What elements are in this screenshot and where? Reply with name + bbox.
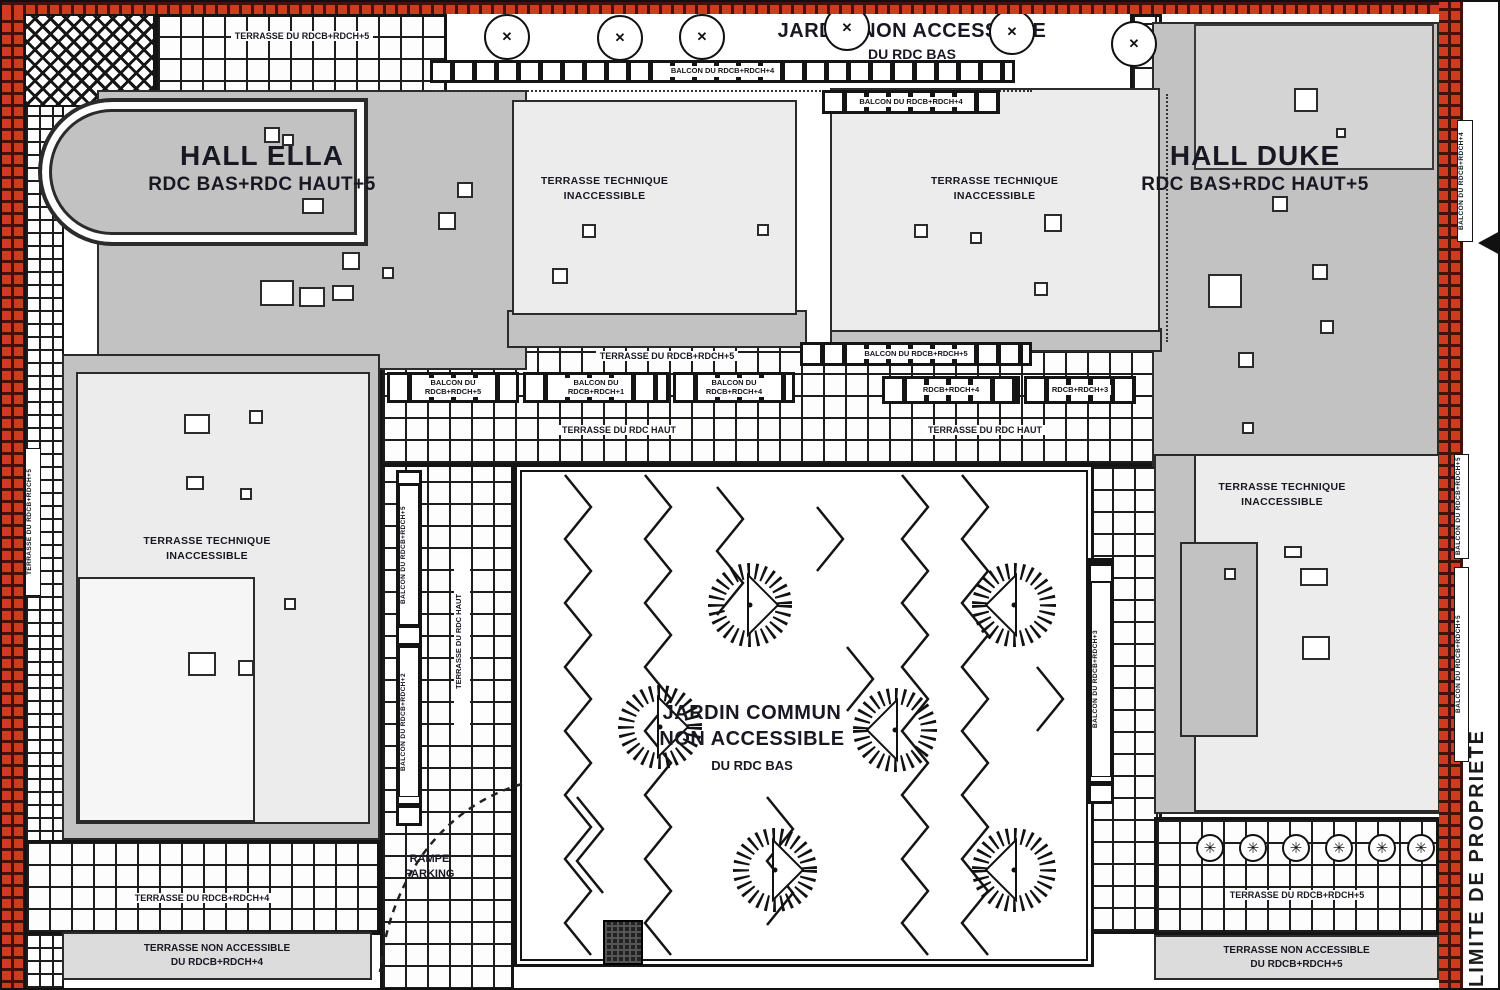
balcony-strip-right-2-label: RDCB+RDCH+3 xyxy=(1049,385,1111,396)
roof-element xyxy=(457,182,473,198)
tree-icon: ✕ xyxy=(679,14,725,60)
garden-label-line2: NON ACCESSIBLE xyxy=(622,728,882,751)
roof-element xyxy=(1272,196,1288,212)
roof-element xyxy=(1224,568,1236,580)
planter-tree-icon: ✳ xyxy=(1282,834,1310,862)
hall-ella-name: HALL ELLA xyxy=(107,140,417,172)
terrace-technique-right-line1: TERRASSE TECHNIQUE xyxy=(1177,480,1387,495)
roof-element xyxy=(552,268,568,284)
terrace-top-left-label: TERRASSE DU RDCB+RDCH+5 xyxy=(231,31,374,41)
terrace-technique-1-line2: INACCESSIBLE xyxy=(502,189,707,204)
roof-element xyxy=(438,212,456,230)
terrace-bottom-left-label-row: TERRASSE DU RDCB+RDCH+4 xyxy=(92,890,312,905)
terrace-mid-label: TERRASSE DU RDCB+RDCH+5 xyxy=(596,351,739,361)
terrace-top-left-label-row: TERRASSE DU RDCB+RDCH+5 xyxy=(162,28,442,44)
terrace-bottom-right-label-row: TERRASSE DU RDCB+RDCH+5 xyxy=(1182,887,1412,902)
roof-element xyxy=(1312,264,1328,280)
balcony-margin-label-1: BALCON DU RDCB+RDCH+4 xyxy=(1457,120,1473,242)
balcony-strip-mid-0-label: BALCON DU RDCB+RDCH+5 xyxy=(861,349,970,360)
terrace-technique-label-left: TERRASSE TECHNIQUE INACCESSIBLE xyxy=(102,534,312,564)
roof-element xyxy=(1284,546,1302,558)
terrace-na-right-line1: TERRASSE NON ACCESSIBLE xyxy=(1156,944,1437,958)
property-boundary-top xyxy=(2,2,1462,14)
balcony-strip-right-2: RDCB+RDCH+3 xyxy=(1024,376,1136,404)
tree-icon: ✕ xyxy=(597,15,643,61)
roof-element xyxy=(302,198,324,214)
hall-duke-levels: RDC BAS+RDC HAUT+5 xyxy=(1082,174,1428,196)
roof-element xyxy=(1294,88,1318,112)
panel1-lower-ledge xyxy=(507,310,807,348)
terrace-technique-panel-2 xyxy=(830,88,1160,332)
terrace-rdc-haut-left-label: TERRASSE DU RDC HAUT xyxy=(558,425,680,435)
roof-element xyxy=(970,232,982,244)
terrace-na-left-line2: DU RDCB+RDCH+4 xyxy=(64,956,370,970)
terrace-technique-2-line1: TERRASSE TECHNIQUE xyxy=(892,174,1097,189)
terrace-technique-1-line1: TERRASSE TECHNIQUE xyxy=(502,174,707,189)
roof-element xyxy=(284,598,296,610)
roof-element xyxy=(757,224,769,236)
planter-tree-icon: ✳ xyxy=(1407,834,1435,862)
roof-element xyxy=(1242,422,1254,434)
balcony-strip-mid-1: BALCON DURDCB+RDCH+5 xyxy=(387,372,519,403)
terrace-grid-bottom-left xyxy=(24,840,380,935)
roof-element xyxy=(332,285,354,301)
balcony-strip-mid-2: BALCON DURDCB+RDCH+1 xyxy=(523,372,669,403)
balcony-1-line2: RDCB+RDCH+5 xyxy=(425,387,481,396)
terrace-na-left-line1: TERRASSE NON ACCESSIBLE xyxy=(64,942,370,956)
terrace-mid-label-row: TERRASSE DU RDCB+RDCH+5 xyxy=(567,348,767,363)
site-plan: JARDIN COMMUN NON ACCESSIBLE DU RDC BAS … xyxy=(0,0,1500,990)
roof-element xyxy=(188,652,216,676)
roof-element xyxy=(582,224,596,238)
roof-element xyxy=(260,280,294,306)
north-arrow-icon xyxy=(1478,230,1500,256)
terrace-left-edge-vertical-label: TERRASSE DU RDCB+RDCH+5 xyxy=(25,448,41,596)
roof-element xyxy=(1034,282,1048,296)
balcony-strip-top: BALCON DU RDCB+RDCH+4 xyxy=(430,60,1015,83)
balcony-strip-right-1-label: RDCB+RDCH+4 xyxy=(920,385,982,396)
boundary-dotted-line-right-of-panel2 xyxy=(1166,94,1168,342)
balcony-strip-right-1: RDCB+RDCH+4 xyxy=(882,376,1020,404)
terrace-rdc-haut-right-row: TERRASSE DU RDC HAUT xyxy=(900,422,1070,437)
balcony-vertical-right-label: BALCON DU RDCB+RDCH+3 xyxy=(1091,582,1111,777)
garden-label-line1: JARDIN COMMUN xyxy=(622,702,882,725)
terrace-bottom-left-label: TERRASSE DU RDCB+RDCH+4 xyxy=(131,893,274,903)
hall-ella-curved-wing xyxy=(38,98,368,246)
garden-drain-grate xyxy=(603,920,643,965)
terrace-technique-left-line2: INACCESSIBLE xyxy=(102,549,312,564)
rampe-dashed-curve xyxy=(374,780,524,975)
right-panel-gray-column xyxy=(1180,542,1258,737)
left-panel-inner-court xyxy=(78,577,255,822)
planter-tree-icon: ✳ xyxy=(1196,834,1224,862)
planter-tree-icon: ✳ xyxy=(1325,834,1353,862)
roof-element xyxy=(282,134,294,146)
balcony-strip-panel2-top: BALCON DU RDCB+RDCH+4 xyxy=(822,90,1000,114)
terrace-technique-left-line1: TERRASSE TECHNIQUE xyxy=(102,534,312,549)
roof-element xyxy=(914,224,928,238)
terrace-rdc-haut-right-label: TERRASSE DU RDC HAUT xyxy=(924,425,1046,435)
roof-element xyxy=(240,488,252,500)
roof-element xyxy=(1336,128,1346,138)
roof-element xyxy=(264,127,280,143)
planter-tree-icon: ✳ xyxy=(1368,834,1396,862)
balcony-margin-label-2: BALCON DU RDCB+RDCH+5 xyxy=(1454,454,1469,559)
terrace-rdc-haut-vertical-label: TERRASSE DU RDC HAUT xyxy=(454,554,470,729)
terrace-technique-right-line2: INACCESSIBLE xyxy=(1177,495,1387,510)
planter-tree-icon: ✳ xyxy=(1239,834,1267,862)
roof-element xyxy=(249,410,263,424)
tree-icon: ✕ xyxy=(989,9,1035,55)
tree-icon: ✕ xyxy=(1111,21,1157,67)
terrace-na-right: TERRASSE NON ACCESSIBLE DU RDCB+RDCH+5 xyxy=(1154,935,1439,980)
garden-label-line3: DU RDC BAS xyxy=(622,758,882,773)
hall-ella-levels: RDC BAS+RDC HAUT+5 xyxy=(72,174,452,196)
terrace-na-left: TERRASSE NON ACCESSIBLE DU RDCB+RDCH+4 xyxy=(62,932,372,980)
terrace-technique-label-1: TERRASSE TECHNIQUE INACCESSIBLE xyxy=(502,174,707,204)
roof-element xyxy=(1238,352,1254,368)
roof-element xyxy=(382,267,394,279)
balcony-3-line2: RDCB+RDCH+4 xyxy=(706,387,762,396)
hall-duke-name: HALL DUKE xyxy=(1102,140,1408,172)
terrace-rdc-haut-left-row: TERRASSE DU RDC HAUT xyxy=(534,422,704,437)
roof-element xyxy=(299,287,325,307)
balcony-strip-panel2-label: BALCON DU RDCB+RDCH+4 xyxy=(856,97,965,108)
property-limit-label: LIMITE DE PROPRIETE xyxy=(1466,647,1500,987)
roof-element xyxy=(186,476,204,490)
balcony-strip-mid-3: BALCON DURDCB+RDCH+4 xyxy=(673,372,795,403)
roof-element xyxy=(1300,568,1328,586)
terrace-bottom-right-label: TERRASSE DU RDCB+RDCH+5 xyxy=(1226,890,1369,900)
balcony-strip-mid-0: BALCON DU RDCB+RDCH+5 xyxy=(800,342,1032,366)
roof-element xyxy=(1044,214,1062,232)
balcony-2-line2: RDCB+RDCH+1 xyxy=(568,387,624,396)
roof-element xyxy=(1302,636,1330,660)
roof-element xyxy=(184,414,210,434)
balcony-strip-mid-3-label: BALCON DURDCB+RDCH+4 xyxy=(703,378,765,397)
roof-element xyxy=(238,660,254,676)
balcony-strip-mid-1-label: BALCON DURDCB+RDCH+5 xyxy=(422,378,484,397)
balcony-strip-mid-2-label: BALCON DURDCB+RDCH+1 xyxy=(565,378,627,397)
roof-element xyxy=(342,252,360,270)
roof-element xyxy=(1208,274,1242,308)
tree-icon: ✕ xyxy=(484,14,530,60)
balcony-vertical-left-label-1: BALCON DU RDCB+RDCH+5 xyxy=(399,485,419,625)
terrace-technique-2-line2: INACCESSIBLE xyxy=(892,189,1097,204)
terrace-na-right-line2: DU RDCB+RDCH+5 xyxy=(1156,958,1437,972)
balcony-strip-top-label: BALCON DU RDCB+RDCH+4 xyxy=(668,66,777,77)
terrace-technique-label-right: TERRASSE TECHNIQUE INACCESSIBLE xyxy=(1177,480,1387,510)
property-boundary-left xyxy=(2,2,24,990)
terrace-technique-label-2: TERRASSE TECHNIQUE INACCESSIBLE xyxy=(892,174,1097,204)
roof-element xyxy=(1320,320,1334,334)
balcony-vertical-left-label-2: BALCON DU RDCB+RDCH+2 xyxy=(399,647,419,797)
